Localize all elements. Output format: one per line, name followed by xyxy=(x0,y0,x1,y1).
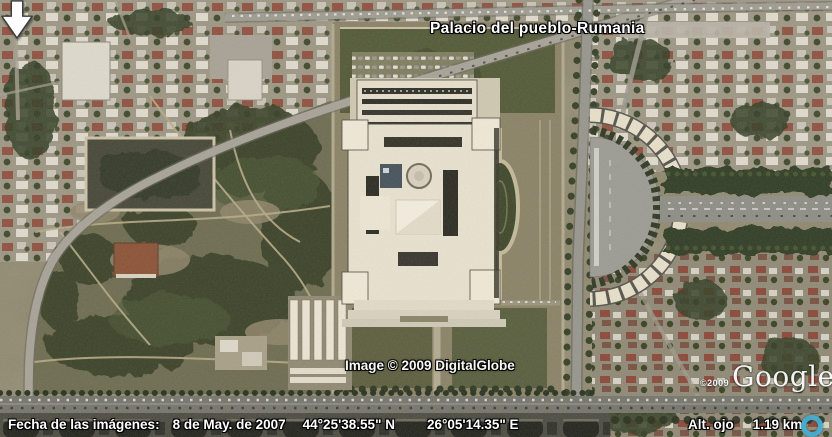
eye-altitude-label: Alt. ojo xyxy=(688,417,734,432)
placemark-label[interactable]: Palacio del pueblo-Rumania xyxy=(430,20,645,38)
google-logo: ©2009 Google ™ xyxy=(700,360,832,393)
imagery-credit: Image © 2009 DigitalGlobe xyxy=(345,358,515,373)
latitude-readout: 44°25'38.55" N xyxy=(303,417,395,432)
placemark-arrow-icon[interactable] xyxy=(0,0,34,40)
statusbar-left: Fecha de las imágenes: 8 de May. de 2007… xyxy=(8,417,519,432)
longitude-readout: 26°05'14.35" E xyxy=(427,417,519,432)
logo-copyright: ©2009 xyxy=(700,378,729,388)
navigation-ring-icon[interactable] xyxy=(801,415,823,437)
eye-altitude-value: 1.19 km xyxy=(753,417,803,432)
imagery-date-label: Fecha de las imágenes: xyxy=(8,417,160,432)
logo-text: Google xyxy=(732,360,832,393)
imagery-date-value: 8 de May. de 2007 xyxy=(173,417,286,432)
statusbar-right: Alt. ojo 1.19 km xyxy=(688,417,802,432)
google-earth-viewport: Palacio del pueblo-Rumania Image © 2009 … xyxy=(0,0,832,437)
